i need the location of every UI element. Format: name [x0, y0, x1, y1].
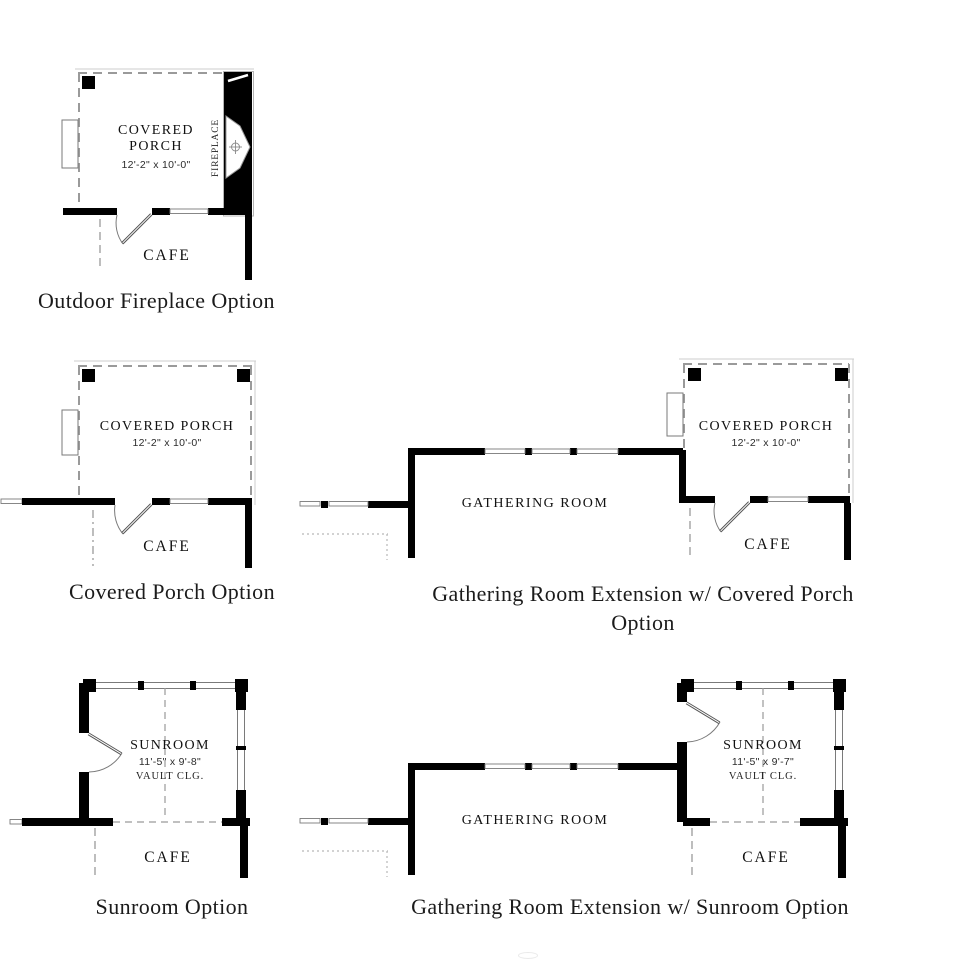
plan-caption: Gathering Room Extension w/ Sunroom Opti… [411, 894, 849, 920]
covered-porch-plan [1, 361, 256, 568]
wall-post [190, 681, 196, 690]
sunroom-plan [10, 679, 250, 878]
door-swing-icon [714, 502, 750, 532]
gathering-room-label: GATHERING ROOM [462, 813, 609, 829]
wall [834, 683, 844, 710]
corner-post-icon [237, 369, 250, 382]
door-opening [117, 207, 152, 216]
room-label: COVERED PORCH [699, 419, 834, 435]
window-icon [170, 209, 208, 214]
door-swing-icon [116, 214, 152, 244]
cafe-label: CAFE [144, 849, 192, 867]
window-icon [300, 502, 320, 507]
room-dimensions: 11'-5" x 9'-8" [139, 756, 201, 768]
corner-post-icon [82, 76, 95, 89]
wall [79, 772, 89, 822]
window-icon [1, 499, 22, 504]
room-dimensions: 12'-2" x 10'-0" [731, 437, 800, 449]
door-opening [715, 495, 750, 504]
wall-post [321, 818, 328, 825]
plan-caption: Gathering Room Extension w/ Covered Porc… [363, 580, 923, 637]
wall [834, 790, 844, 822]
wall [245, 215, 252, 280]
window-icon [329, 819, 368, 824]
room-label: SUNROOM [723, 738, 803, 754]
cafe-label: CAFE [143, 538, 191, 556]
ceiling-label: VAULT CLG. [729, 771, 797, 782]
room-label: COVERED PORCH [104, 123, 208, 155]
window-icon [667, 393, 683, 436]
gathering-room-label: GATHERING ROOM [462, 496, 609, 512]
wall-post [788, 681, 794, 690]
plan-caption: Outdoor Fireplace Option [38, 288, 275, 314]
wall [236, 683, 246, 710]
wall [368, 818, 413, 825]
wall [838, 822, 846, 878]
door-swing-icon [686, 702, 720, 742]
door-opening [115, 497, 152, 506]
wall [368, 501, 413, 508]
window-icon [170, 499, 208, 504]
window-icon [532, 449, 570, 454]
wall-post [321, 501, 328, 508]
door-swing-icon [115, 504, 152, 534]
window-icon [577, 764, 618, 769]
door-swing-icon [88, 733, 122, 772]
window-icon [10, 820, 22, 825]
caption-line-1: Gathering Room Extension w/ Covered Porc… [432, 581, 854, 606]
caption-line-2: Option [611, 610, 675, 635]
wall [679, 450, 686, 503]
wall [683, 496, 850, 503]
floor-plan-sheet: COVERED PORCH 12'-2" x 10'-0" FIREPLACE … [0, 0, 960, 960]
wall [240, 822, 248, 878]
wall-post [736, 681, 742, 690]
window-icon [62, 410, 78, 455]
wall-post [138, 681, 144, 690]
plan-caption: Sunroom Option [96, 894, 249, 920]
wall [245, 498, 252, 568]
corner-post-icon [688, 368, 701, 381]
fireplace-label: FIREPLACE [211, 119, 221, 177]
window-icon [485, 764, 525, 769]
gathering-room-covered-porch-plan [300, 359, 854, 560]
room-dimensions: 11'-5" x 9'-7" [732, 756, 794, 768]
wall [844, 503, 851, 560]
corner-post-icon [82, 369, 95, 382]
room-dimensions: 12'-2" x 10'-0" [121, 159, 190, 171]
plan-caption: Covered Porch Option [69, 579, 275, 605]
wall [236, 790, 246, 822]
window-icon [768, 497, 808, 502]
window-icon [329, 502, 368, 507]
cafe-label: CAFE [143, 247, 191, 265]
room-label: COVERED PORCH [100, 419, 235, 435]
window-icon [485, 449, 525, 454]
wall [79, 683, 89, 733]
window-icon [577, 449, 618, 454]
window-icon [300, 819, 320, 824]
page-edge-mark [518, 952, 538, 959]
window-icon [62, 120, 78, 168]
wall [677, 683, 687, 702]
corner-post-icon [835, 368, 848, 381]
cafe-label: CAFE [742, 849, 790, 867]
room-dimensions: 12'-2" x 10'-0" [132, 437, 201, 449]
cafe-label: CAFE [744, 536, 792, 554]
room-label: SUNROOM [130, 738, 210, 754]
wall [22, 818, 113, 826]
window-icon [532, 764, 570, 769]
ceiling-label: VAULT CLG. [136, 771, 204, 782]
wall-post [834, 746, 844, 750]
wall [683, 818, 710, 826]
wall-post [236, 746, 246, 750]
wall [677, 742, 687, 822]
